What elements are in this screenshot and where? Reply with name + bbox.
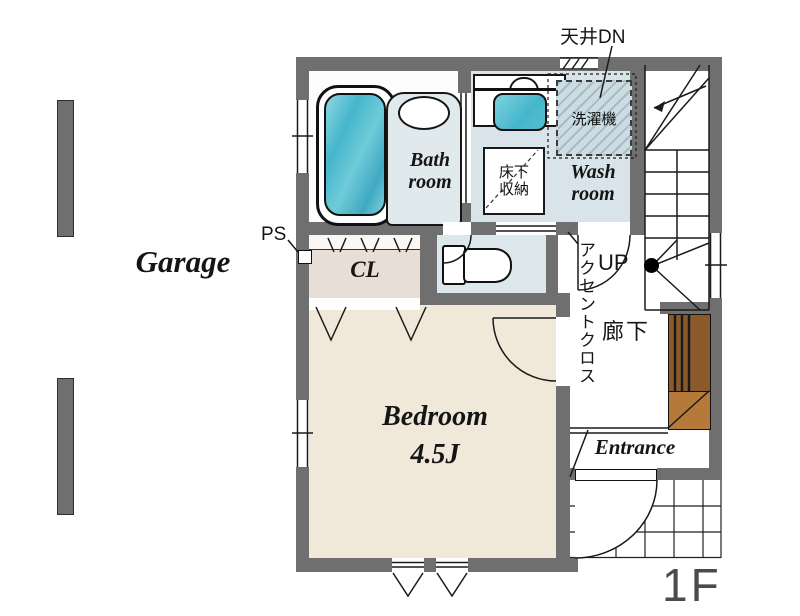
bedroom-size: 4.5J [411,439,460,470]
wall-bath-wash-top [458,71,471,93]
closet-door-track [309,298,420,310]
window-bedroom-bottom-1 [392,558,424,572]
shoe-cabinet-upper [668,314,711,393]
up-label: UP [598,250,629,276]
window-stairs [709,233,722,298]
wall-entrance-bottom-right [657,468,722,480]
window-washroom-top [560,58,598,70]
garage-label: Garage [118,245,248,278]
bedroom-name: Bedroom [382,401,488,432]
hallway-label: 廊下 [602,314,650,346]
ps-label: PS [261,224,286,246]
wall-under-wash-mid [556,222,578,235]
garage-wall-lower [57,378,74,515]
porch-tiles [570,480,722,558]
underfloor-storage: 床下 収納 [483,147,545,215]
ps-box [298,250,312,264]
sink-basin [493,93,547,131]
closet-label: CL [335,258,395,283]
closet-hanger-strip [309,235,420,249]
wall-bedroom-right-upper [556,293,570,317]
stairs-up-dot [644,258,659,273]
window-bedroom-left [296,400,309,467]
window-bedroom-bottom-2 [436,558,468,572]
underfloor-storage-line2: 収納 [499,181,529,198]
entrance-label: Entrance [575,436,695,459]
wall-cabinet-cap [660,302,722,314]
toilet-door-opening [443,222,471,235]
wall-entrance-bottom-left [556,468,575,480]
bath-counter [398,96,450,130]
stairs-floor [645,65,709,310]
front-door-leaf [575,469,657,481]
bedroom-label: Bedroom 4.5J [330,398,540,474]
underfloor-storage-line1: 床下 [499,164,529,181]
washing-machine-label: 洗濯機 [571,108,616,129]
toilet-bowl [463,248,512,283]
washroom-label-line1: Wash [570,161,615,183]
wall-under-wash-left [471,222,496,235]
shoe-cabinet-lower [668,391,711,430]
bathroom-label-line1: Bath [410,149,450,171]
wall-top [296,57,722,71]
washing-machine-area: 洗濯機 [556,80,632,156]
washroom-label: Wash room [555,162,631,205]
washroom-sliding-door [496,222,556,235]
wall-toilet-bottom [420,293,558,305]
vanity-mirror-line [473,88,564,91]
ceiling-dn-label: 天井DN [560,22,625,49]
wall-wash-stairs [630,71,645,235]
bathroom-label: Bath room [395,150,465,193]
floor-plan: Garage 洗濯機 床下 収納 [0,0,800,616]
window-bathroom [296,100,309,173]
garage-wall-upper [57,100,74,237]
bathtub [316,85,396,226]
floor-label: 1F [662,558,722,612]
washroom-hall-door-opening [578,222,630,235]
accent-cloth-label: アクセントクロス [573,241,598,401]
washroom-label-line2: room [571,183,614,205]
bathroom-label-line2: room [408,171,451,193]
